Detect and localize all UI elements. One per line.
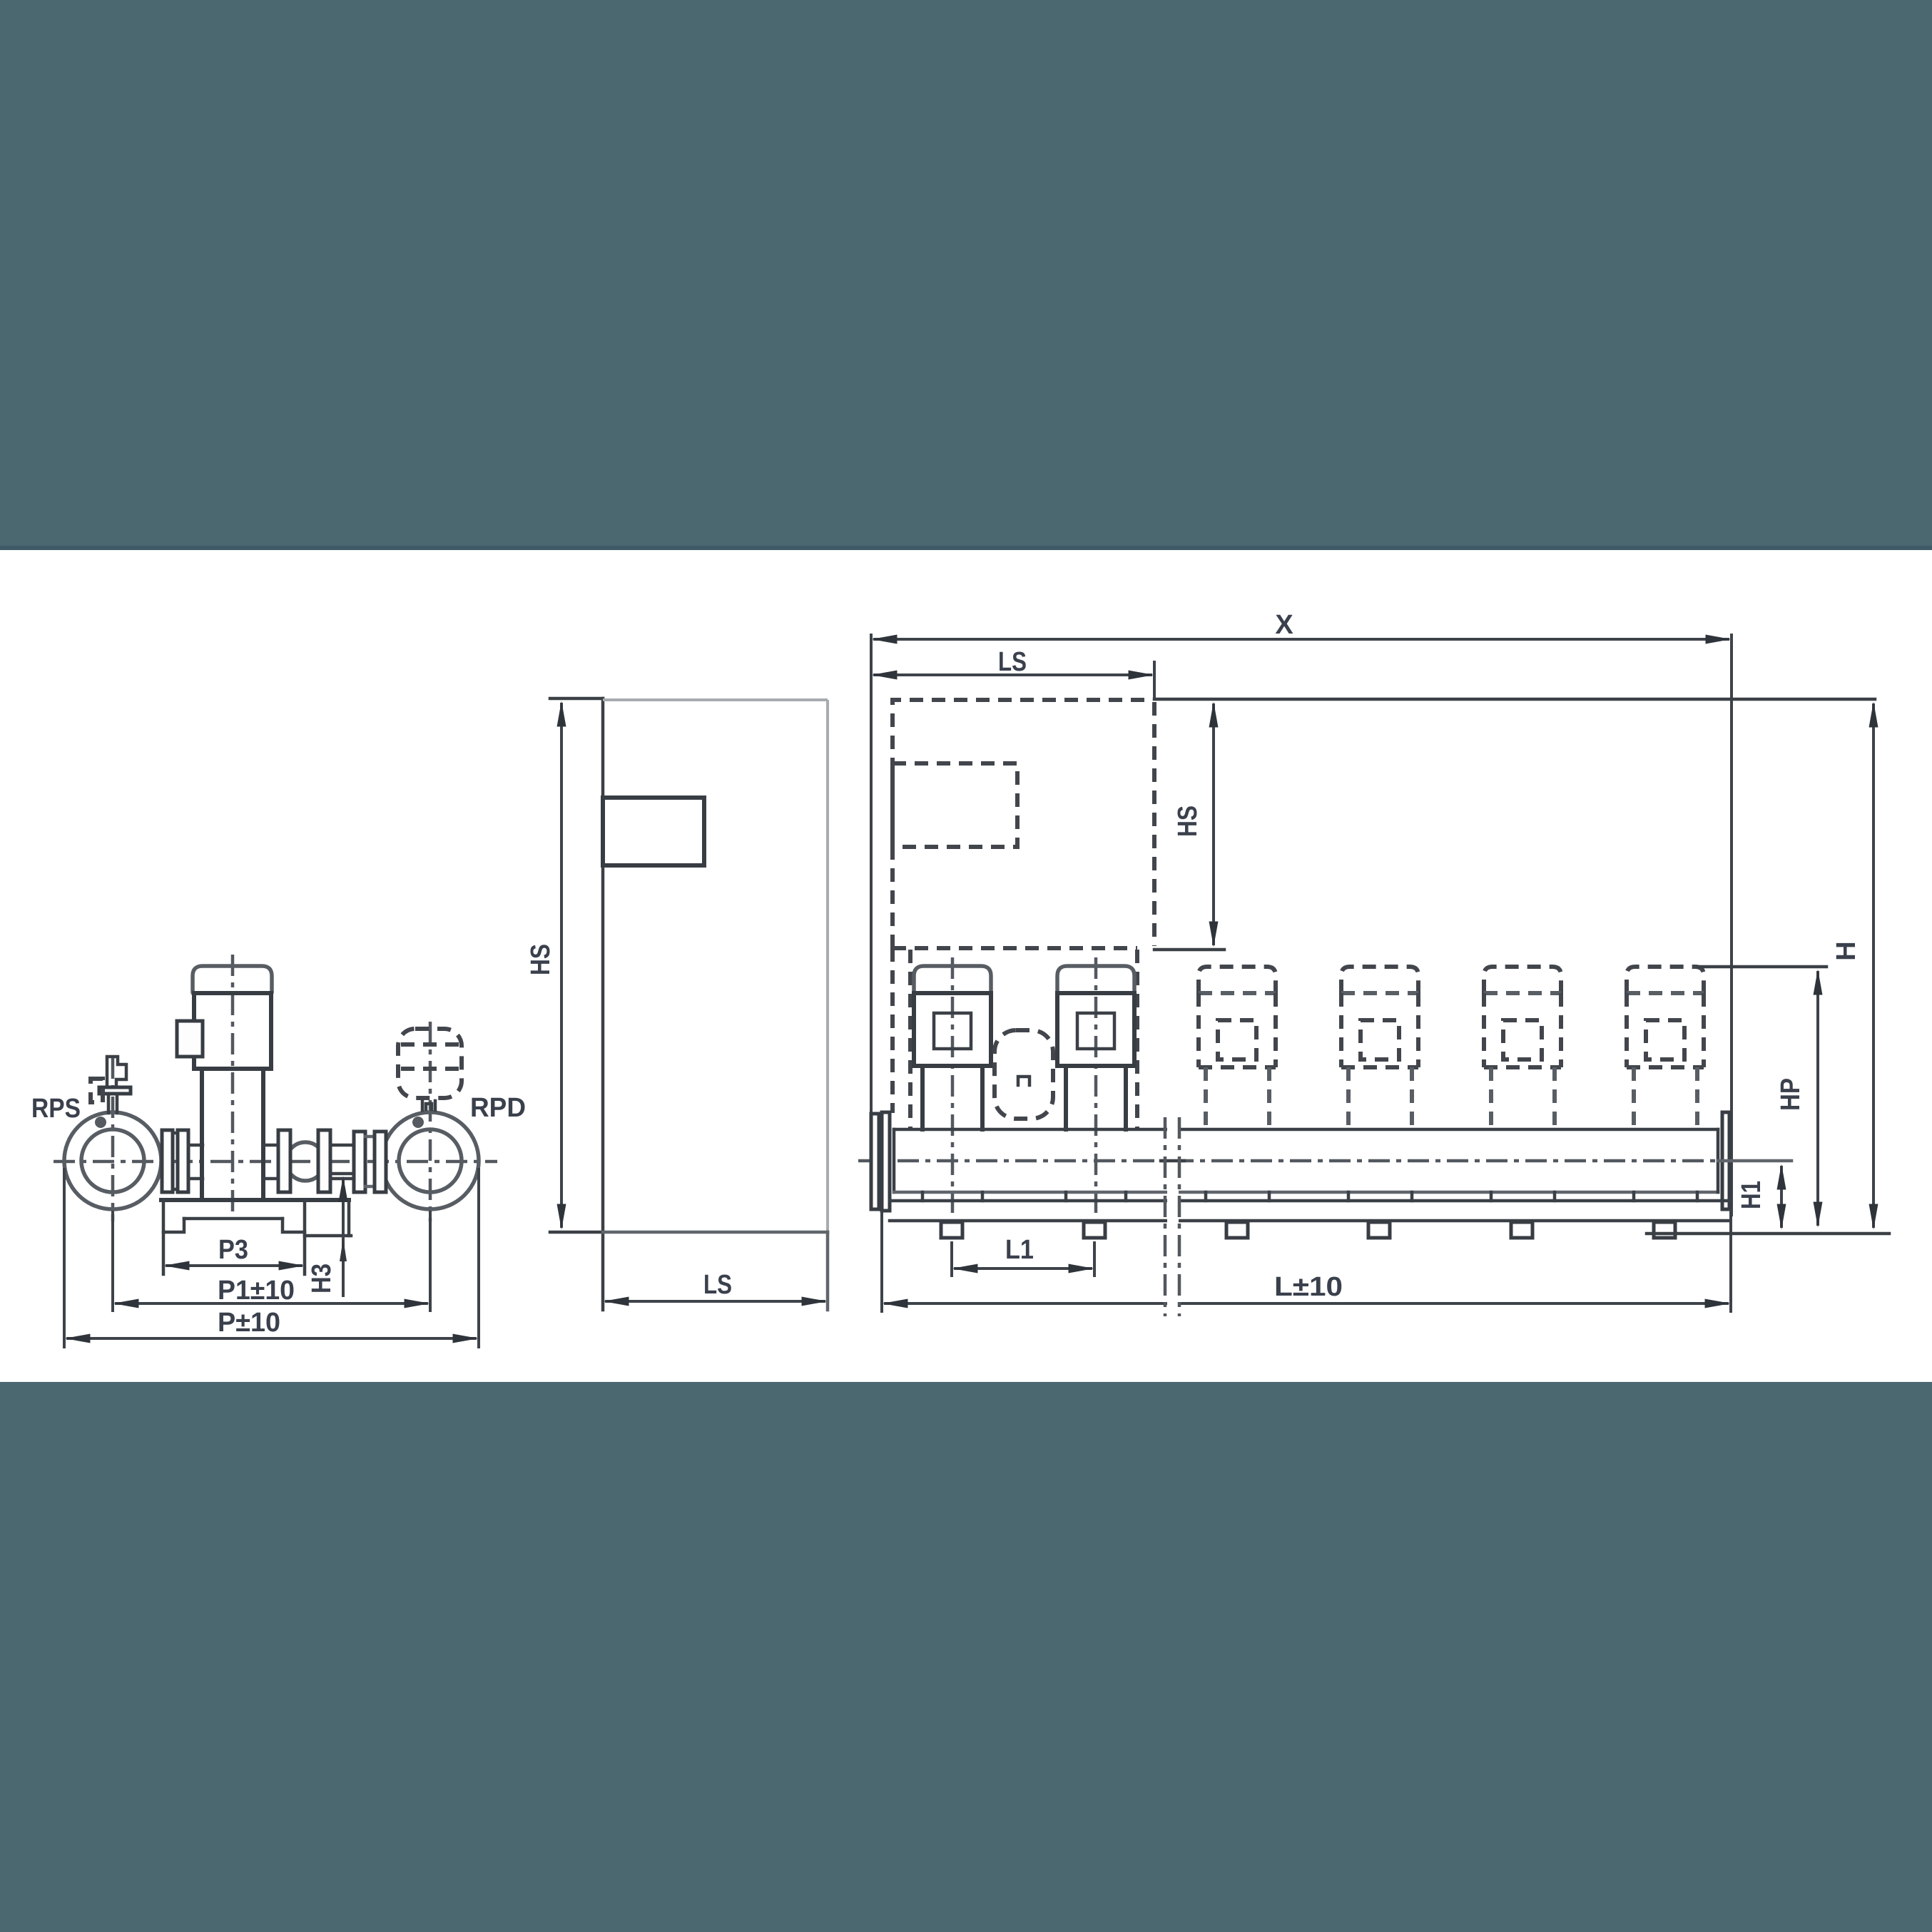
svg-text:H3: H3 [307, 1264, 337, 1293]
svg-text:RPD: RPD [470, 1093, 526, 1123]
svg-text:RPS: RPS [31, 1094, 81, 1124]
svg-text:LS: LS [703, 1270, 732, 1300]
svg-text:P±10: P±10 [218, 1308, 280, 1338]
svg-text:L1: L1 [1005, 1235, 1034, 1265]
svg-text:X: X [1275, 610, 1293, 640]
svg-text:H1: H1 [1737, 1181, 1766, 1209]
svg-text:H: H [1831, 941, 1861, 960]
svg-text:LS: LS [998, 647, 1027, 677]
svg-text:P1±10: P1±10 [218, 1276, 295, 1306]
svg-text:HS: HS [1173, 805, 1203, 837]
svg-text:P3: P3 [218, 1235, 248, 1265]
svg-text:HS: HS [526, 944, 556, 975]
svg-text:L±10: L±10 [1274, 1272, 1343, 1302]
svg-text:HP: HP [1776, 1078, 1806, 1111]
